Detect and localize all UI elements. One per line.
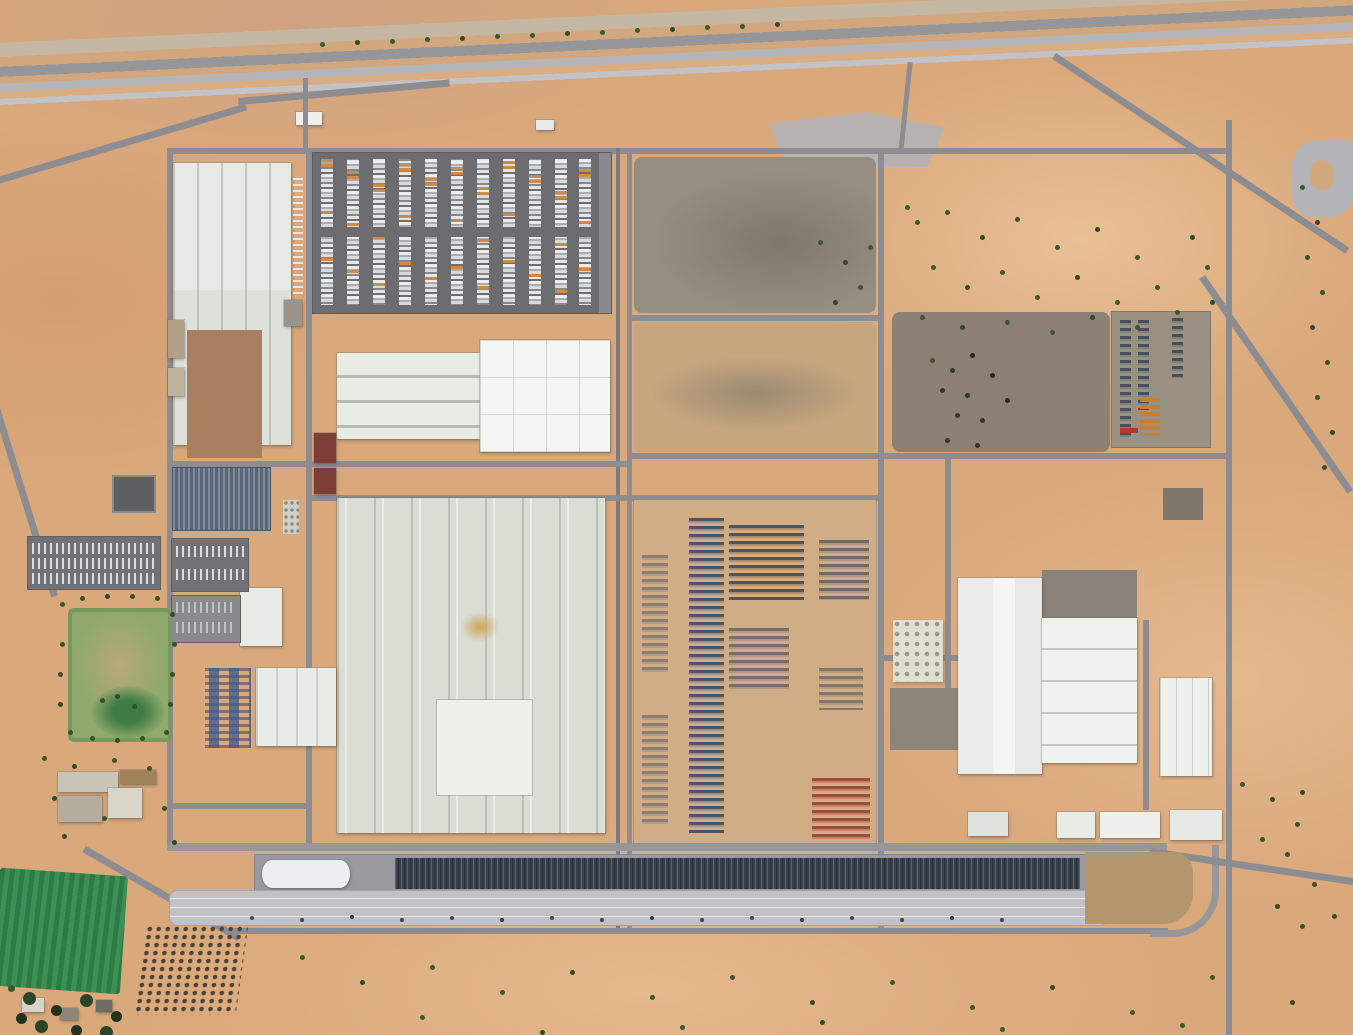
road-v-mid <box>878 148 884 934</box>
white-canopy <box>262 860 350 888</box>
small-parking <box>172 596 240 642</box>
red-container <box>1120 428 1138 433</box>
road-h-805 <box>167 803 312 809</box>
west-hall-car-row <box>293 178 303 298</box>
east-dark-ground <box>1042 570 1137 618</box>
press-hall <box>337 353 482 439</box>
car-column <box>1138 320 1149 410</box>
panel-strip <box>173 468 270 530</box>
farm-building-3 <box>96 1000 112 1012</box>
car-row <box>176 546 244 557</box>
sw-building-4 <box>120 770 156 784</box>
blue-car-rows <box>205 668 251 748</box>
green-tree-mass <box>92 686 164 738</box>
east-hall-small <box>1160 678 1212 776</box>
road-h-317 <box>632 315 882 321</box>
car-cluster <box>642 715 668 825</box>
small-shed-1 <box>168 320 184 358</box>
car-column <box>1172 318 1183 378</box>
south-shed-1 <box>1057 812 1095 838</box>
east-brown-ground <box>890 688 960 750</box>
container-yard <box>1112 312 1210 447</box>
satellite-map-canvas[interactable] <box>0 0 1353 1035</box>
road-v-spine-b <box>627 148 632 934</box>
road-v-east2 <box>1143 620 1149 810</box>
north-parking-lot <box>313 153 611 313</box>
car-row <box>32 543 156 554</box>
west-parking-1 <box>28 537 160 589</box>
dark-basin <box>114 477 154 511</box>
main-hall-stain <box>460 612 500 642</box>
red-roof-block-2 <box>314 468 336 494</box>
dotted-structure <box>283 500 299 534</box>
south-shed-4 <box>968 812 1008 836</box>
tree-cluster-mid-desert <box>818 240 823 245</box>
west-parking-2 <box>172 539 248 591</box>
perimeter-road-s <box>233 928 1168 934</box>
desert-road-e <box>1199 275 1353 494</box>
car-cluster <box>819 668 863 710</box>
track-median-dirt <box>1085 852 1193 924</box>
entrance-road <box>303 78 308 152</box>
east-hall-east <box>1042 618 1137 763</box>
farm-building-1 <box>22 998 44 1012</box>
tree-row-corridor <box>320 42 325 47</box>
road-v-spine-a <box>616 148 620 934</box>
tree-cluster-se <box>1240 782 1245 787</box>
sw-building-3 <box>108 788 142 818</box>
mid-dirt-lot <box>634 322 876 452</box>
car-cluster <box>689 518 724 833</box>
car-cluster <box>819 540 869 600</box>
car-row <box>176 602 236 613</box>
sw-building-2 <box>58 796 102 822</box>
parking-aisle <box>313 227 611 237</box>
tree-mass-sw-corner <box>8 985 15 992</box>
road-h-463 <box>167 461 632 467</box>
orange-containers <box>1140 398 1160 436</box>
tree-cluster-sw <box>42 756 47 761</box>
perimeter-road-e <box>1226 120 1232 1035</box>
tree-row-east-edge <box>1300 185 1305 190</box>
gatehouse <box>296 112 322 125</box>
west-small-hall <box>240 588 282 646</box>
east-hall-west <box>958 578 1042 774</box>
gatehouse-2 <box>536 120 554 130</box>
road-h-455 <box>632 453 1230 459</box>
checkered-building <box>893 620 943 682</box>
parking-side-lane <box>599 153 611 313</box>
car-row <box>32 558 156 569</box>
north-dirt-lot <box>634 157 876 313</box>
orchard-grid <box>134 925 249 1015</box>
small-dark-pad <box>1163 488 1203 520</box>
car-column <box>1120 320 1131 438</box>
car-cluster <box>729 628 789 690</box>
car-row <box>176 622 236 633</box>
main-hall-south-wing <box>437 700 532 795</box>
small-shed-3 <box>284 300 302 326</box>
vehicle-yard <box>634 500 876 843</box>
car-row <box>32 573 156 584</box>
west-annex-hall <box>256 668 336 746</box>
white-hall <box>480 340 610 452</box>
car-row <box>176 569 244 580</box>
test-track <box>170 891 1115 925</box>
road-h-845 <box>167 843 1167 851</box>
green-crop-field <box>0 868 128 995</box>
dark-car-train <box>395 858 1080 889</box>
red-roof-block-1 <box>314 433 336 463</box>
tree-cluster-east-lot <box>930 358 935 363</box>
tree-ring-sports-field <box>60 602 65 607</box>
tree-cluster-bottom-desert <box>300 955 305 960</box>
south-shed-3 <box>1170 810 1222 840</box>
west-hall-brown-roof <box>187 330 262 458</box>
south-shed-2 <box>1100 812 1160 838</box>
bush-row-track-median <box>250 916 254 920</box>
tree-cluster-ne-desert <box>905 205 910 210</box>
gravel-loop-hole <box>1310 160 1334 190</box>
farm-building-2 <box>60 1008 78 1020</box>
east-dark-lot <box>892 312 1110 452</box>
car-cluster <box>642 555 668 675</box>
small-shed-2 <box>168 368 184 396</box>
red-car-cluster <box>812 778 870 840</box>
car-cluster <box>729 525 804 600</box>
